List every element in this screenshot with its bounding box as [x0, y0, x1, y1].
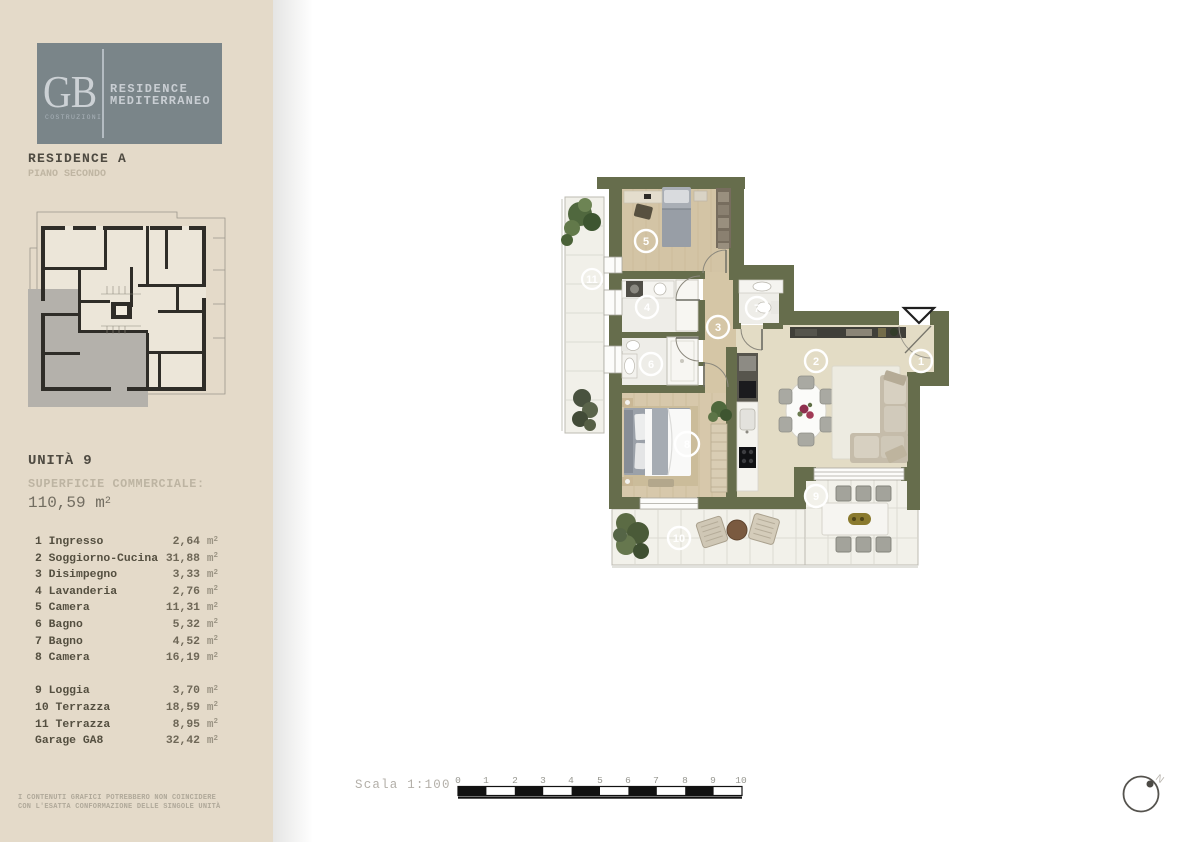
svg-text:6: 6: [625, 775, 631, 786]
svg-text:3: 3: [715, 322, 721, 334]
svg-text:7: 7: [653, 775, 659, 786]
svg-text:4: 4: [644, 302, 651, 314]
svg-text:9: 9: [710, 775, 716, 786]
svg-text:8: 8: [682, 775, 688, 786]
svg-text:5: 5: [597, 775, 603, 786]
svg-text:4: 4: [568, 775, 574, 786]
svg-text:10: 10: [673, 533, 685, 545]
svg-text:11: 11: [586, 274, 598, 286]
svg-text:8: 8: [684, 439, 690, 451]
svg-text:6: 6: [648, 359, 654, 371]
svg-text:1: 1: [483, 775, 489, 786]
svg-text:2: 2: [512, 775, 518, 786]
svg-text:0: 0: [455, 775, 461, 786]
svg-text:9: 9: [813, 491, 819, 503]
svg-text:7: 7: [754, 303, 760, 315]
svg-text:2: 2: [813, 356, 819, 368]
svg-text:3: 3: [540, 775, 546, 786]
svg-text:5: 5: [643, 236, 649, 248]
svg-text:1: 1: [918, 356, 924, 368]
svg-text:10: 10: [735, 775, 747, 786]
